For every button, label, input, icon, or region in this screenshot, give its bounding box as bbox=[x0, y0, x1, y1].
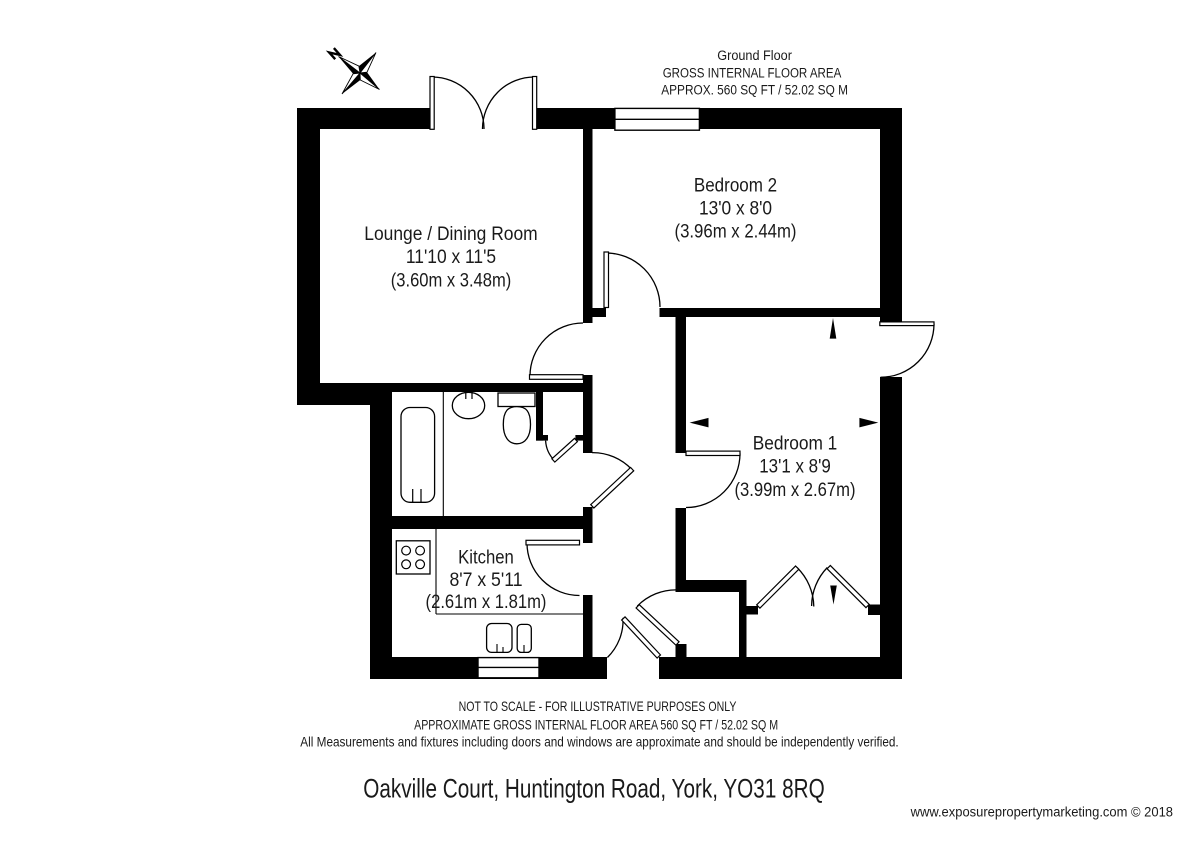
svg-text:All Measurements and fixtures: All Measurements and fixtures including … bbox=[300, 734, 898, 750]
svg-text:APPROXIMATE GROSS INTERNAL FLO: APPROXIMATE GROSS INTERNAL FLOOR AREA 56… bbox=[414, 716, 778, 732]
svg-text:Kitchen: Kitchen bbox=[458, 547, 514, 569]
svg-text:Ground Floor: Ground Floor bbox=[717, 48, 792, 63]
svg-text:Bedroom 2: Bedroom 2 bbox=[694, 174, 777, 196]
svg-text:www.exposurepropertymarketing.: www.exposurepropertymarketing.com © 2018 bbox=[910, 804, 1173, 819]
svg-text:(3.96m x 2.44m): (3.96m x 2.44m) bbox=[675, 220, 797, 242]
svg-text:Lounge / Dining Room: Lounge / Dining Room bbox=[364, 223, 537, 245]
svg-text:13'1 x 8'9: 13'1 x 8'9 bbox=[759, 456, 831, 478]
svg-text:Bedroom 1: Bedroom 1 bbox=[753, 432, 838, 454]
svg-text:13'0 x 8'0: 13'0 x 8'0 bbox=[699, 197, 772, 219]
svg-text:GROSS INTERNAL FLOOR AREA: GROSS INTERNAL FLOOR AREA bbox=[663, 65, 842, 80]
svg-text:11'10 x 11'5: 11'10 x 11'5 bbox=[406, 246, 496, 268]
svg-text:Oakville Court, Huntington Roa: Oakville Court, Huntington Road, York, Y… bbox=[363, 773, 824, 803]
svg-text:(2.61m x 1.81m): (2.61m x 1.81m) bbox=[426, 591, 547, 613]
svg-text:APPROX. 560 SQ FT / 52.02 SQ M: APPROX. 560 SQ FT / 52.02 SQ M bbox=[661, 83, 848, 98]
svg-text:8'7 x 5'11: 8'7 x 5'11 bbox=[449, 569, 522, 591]
svg-text:NOT TO SCALE - FOR ILLUSTRATIV: NOT TO SCALE - FOR ILLUSTRATIVE PURPOSES… bbox=[459, 698, 737, 714]
svg-text:(3.60m x 3.48m): (3.60m x 3.48m) bbox=[391, 270, 512, 292]
svg-text:(3.99m x 2.67m): (3.99m x 2.67m) bbox=[735, 479, 856, 501]
